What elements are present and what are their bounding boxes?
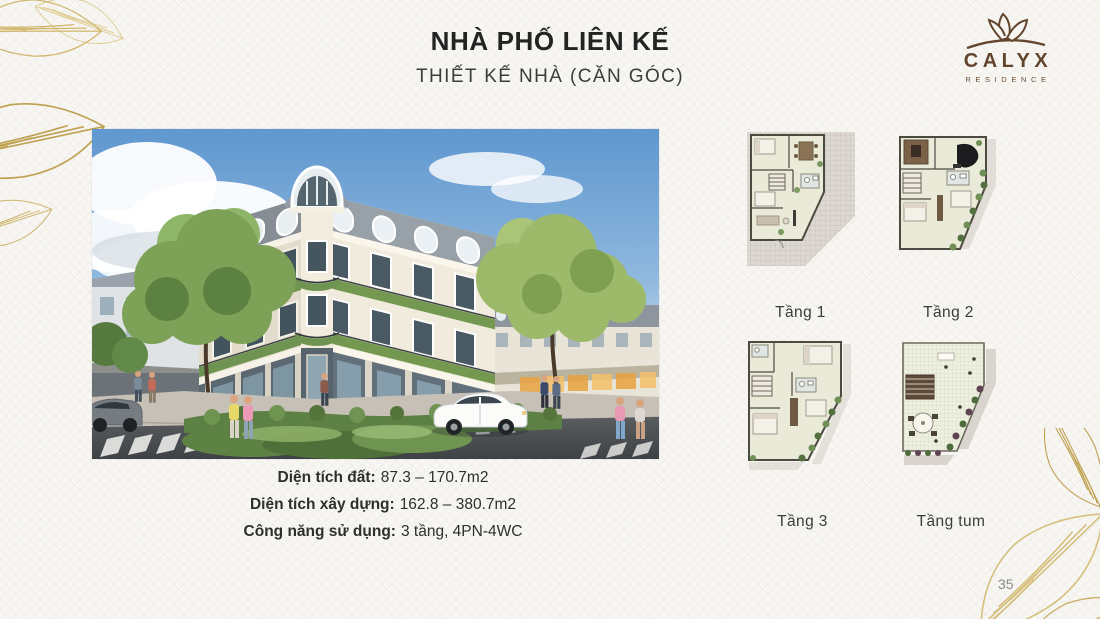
floor-plan-tang-3 [744,338,861,488]
floor-plan-label-tang-tum: Tầng tum [896,513,1006,531]
floor-plan-tang-1 [745,130,856,283]
calyx-logo: CALYX RESIDENCE [946,12,1066,84]
spec-list: Diện tích đất:87.3 – 170.7m2 Diện tích x… [228,469,538,550]
spec-usage: Công năng sử dụng:3 tầng, 4PN-4WC [228,523,538,541]
floor-plan-label-tang-1: Tầng 1 [745,304,856,322]
header: NHÀ PHỐ LIÊN KẾ THIẾT KẾ NHÀ (CĂN GÓC) [250,26,850,88]
page-title: NHÀ PHỐ LIÊN KẾ [250,26,850,57]
page-number: 35 [998,576,1014,592]
spec-construction-area: Diện tích xây dựng:162.8 – 380.7m2 [228,496,538,514]
floor-plan-tang-2 [895,133,1002,281]
floor-plan-label-tang-3: Tầng 3 [744,513,861,531]
slide: NHÀ PHỐ LIÊN KẾ THIẾT KẾ NHÀ (CĂN GÓC) C… [0,0,1100,619]
logo-name: CALYX [946,50,1066,73]
logo-subtitle: RESIDENCE [946,75,1066,84]
building-render-scene [92,129,659,459]
floor-plan-tang-tum [896,337,1006,488]
spec-land-area: Diện tích đất:87.3 – 170.7m2 [228,469,538,487]
building-render-image [92,129,659,459]
floor-plan-label-tang-2: Tầng 2 [895,304,1002,322]
calyx-flower-icon [963,12,1049,52]
page-subtitle: THIẾT KẾ NHÀ (CĂN GÓC) [250,66,850,88]
